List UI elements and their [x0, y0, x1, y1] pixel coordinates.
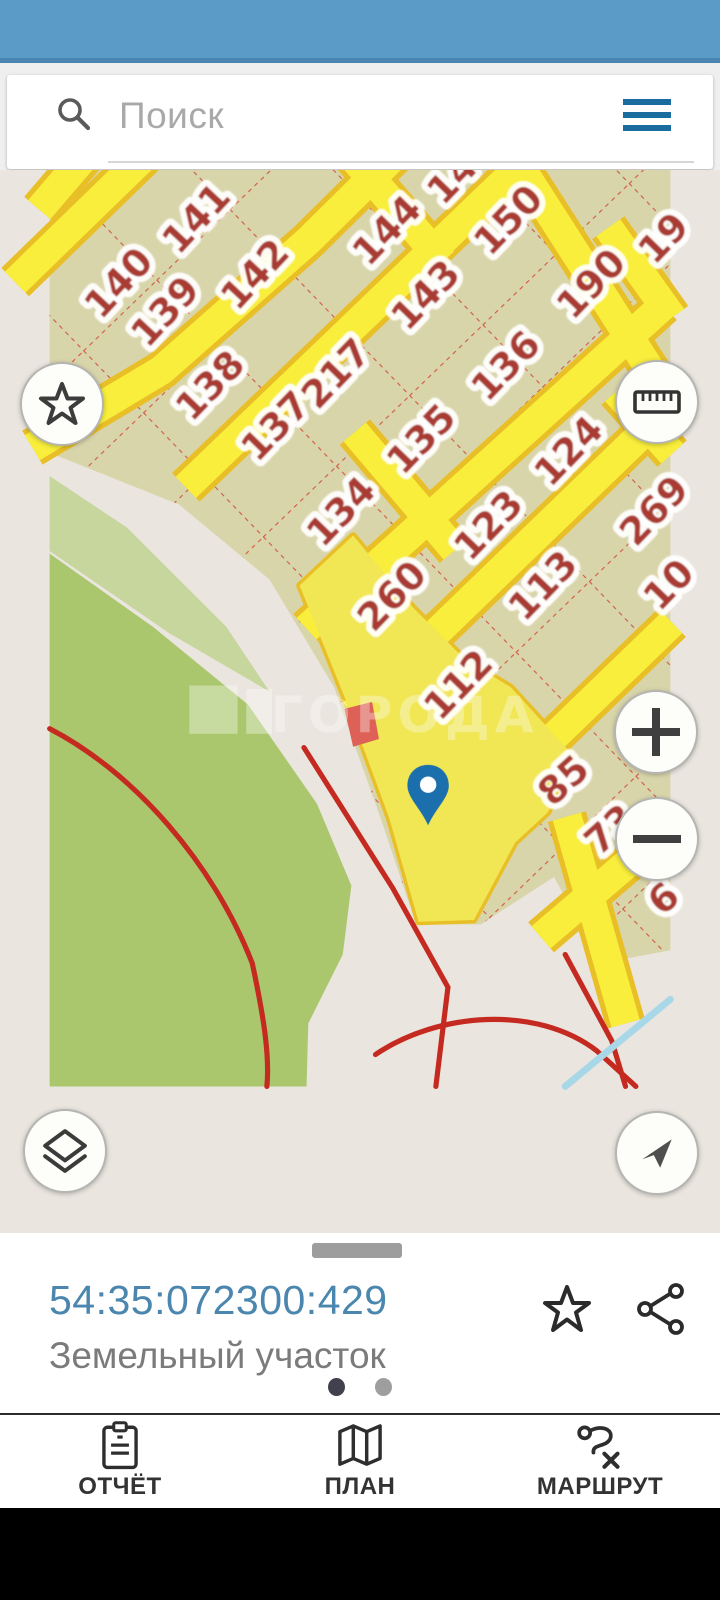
nav-item-report[interactable]: ОТЧЁТ	[10, 1415, 230, 1508]
page-indicator	[0, 1378, 720, 1404]
sheet-drag-handle[interactable]	[312, 1243, 402, 1258]
star-icon	[38, 380, 86, 428]
layers-icon	[42, 1128, 88, 1174]
share-icon	[637, 1283, 685, 1335]
nav-item-plan[interactable]: ПЛАН	[250, 1415, 470, 1508]
page-dot-active	[328, 1378, 345, 1396]
share-button[interactable]	[636, 1283, 686, 1335]
cadastral-number-link[interactable]: 54:35:072300:429	[49, 1277, 388, 1324]
favorites-button[interactable]	[20, 362, 104, 446]
plus-icon	[630, 706, 682, 758]
ruler-icon	[633, 390, 681, 414]
nav-label-route: МАРШРУТ	[537, 1473, 663, 1501]
search-card: Поиск	[7, 75, 713, 169]
layers-button[interactable]	[23, 1109, 107, 1193]
nav-label-plan: ПЛАН	[325, 1473, 396, 1501]
map-basemap: ГОРОДА 140141139142141381372171441431501…	[0, 170, 720, 1233]
parcel-type-label: Земельный участок	[49, 1335, 386, 1377]
minus-icon	[631, 813, 683, 865]
clipboard-icon	[100, 1421, 140, 1471]
hamburger-menu-icon[interactable]	[623, 99, 671, 133]
zoom-out-button[interactable]	[615, 797, 699, 881]
status-bar	[0, 0, 720, 63]
svg-text:ГОРОДА: ГОРОДА	[271, 686, 539, 744]
magnifier-icon	[57, 97, 91, 131]
bottom-navigation: ОТЧЁТ ПЛАН МАРШРУТ	[0, 1413, 720, 1508]
folded-map-icon	[338, 1424, 382, 1468]
favorite-button[interactable]	[542, 1283, 592, 1335]
search-underline	[108, 161, 694, 163]
android-gesture-bar	[0, 1508, 720, 1600]
zoom-in-button[interactable]	[614, 690, 698, 774]
route-icon	[577, 1423, 623, 1469]
search-area: Поиск	[0, 63, 720, 170]
star-outline-icon	[543, 1284, 591, 1334]
search-input[interactable]: Поиск	[119, 95, 224, 137]
nav-item-route[interactable]: МАРШРУТ	[490, 1415, 710, 1508]
map-canvas[interactable]: ГОРОДА 140141139142141381372171441431501…	[0, 170, 720, 1233]
measure-button[interactable]	[615, 360, 699, 444]
page-dot	[375, 1378, 392, 1396]
nav-label-report: ОТЧЁТ	[78, 1473, 161, 1501]
my-location-button[interactable]	[615, 1111, 699, 1195]
navigation-arrow-icon	[636, 1132, 678, 1174]
